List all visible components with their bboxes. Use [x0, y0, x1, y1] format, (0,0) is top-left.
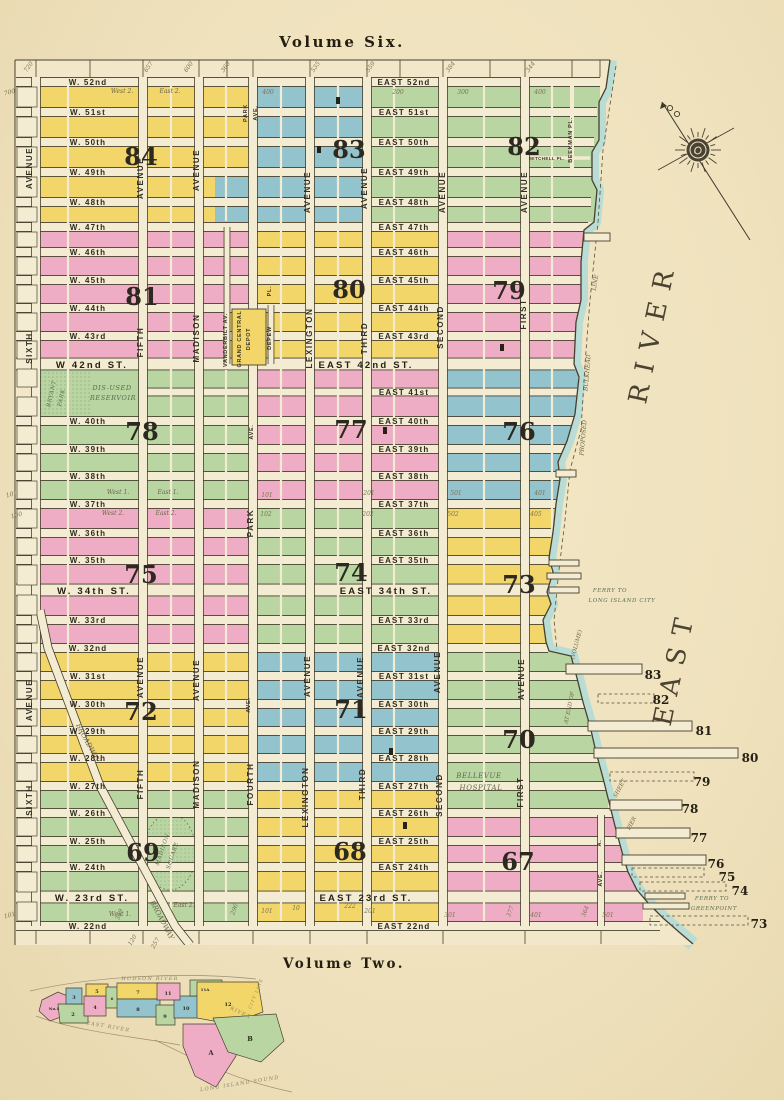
- avenue-label: SECOND: [435, 773, 444, 817]
- margin-block: [17, 257, 37, 275]
- park-annotation: FERRY TO: [694, 896, 729, 902]
- street-label: W. 34th ST.: [57, 586, 131, 597]
- street-label: W. 33rd: [70, 616, 107, 625]
- street-label: EAST 24th: [379, 863, 430, 872]
- map-annotation: West 2.: [102, 510, 124, 517]
- margin-block: [17, 736, 37, 753]
- compass-ray: [710, 154, 715, 156]
- street-label: W. 23rd ST.: [55, 893, 129, 904]
- pier-dashed: [598, 694, 654, 703]
- street-label: W. 45th: [70, 276, 106, 285]
- street-label: EAST 47th: [379, 223, 430, 232]
- pier: [594, 748, 738, 758]
- avenue-label: AVENUE: [433, 651, 442, 693]
- map-annotation: East 2.: [158, 88, 180, 95]
- street-label: EAST 22nd: [377, 922, 430, 931]
- pier-number: 77: [691, 831, 708, 845]
- avenue-label: MADISON: [192, 314, 201, 363]
- pier-number: 82: [653, 693, 670, 707]
- avenue-label: MADISON: [192, 760, 201, 809]
- margin-block: [17, 818, 37, 836]
- street-label: EAST 35th: [379, 556, 430, 565]
- lot-number: 400: [261, 89, 274, 96]
- lot-number: 405: [529, 511, 542, 518]
- atlas-key-map: Volume Six.Volume Two.RIVEREASTW. 52ndW.…: [0, 0, 784, 1100]
- lot-number: 102: [260, 511, 272, 518]
- avenue-label: THIRD: [358, 768, 367, 800]
- district-number: 81: [125, 282, 158, 311]
- street-label: W. 24th: [70, 863, 106, 872]
- inset-district-number: 7: [136, 990, 140, 996]
- district-number: 77: [334, 415, 367, 444]
- lot-number: 501: [602, 912, 613, 919]
- pier: [610, 800, 682, 810]
- street-label: EAST 27th: [379, 782, 430, 791]
- map-annotation: LINE: [591, 274, 601, 293]
- district-number: 76: [502, 417, 535, 446]
- street-label: W. 43rd: [70, 332, 107, 341]
- avenue-label: FIFTH: [136, 327, 145, 358]
- avenue-label: AVENUE: [192, 149, 201, 191]
- pier-dashed: [632, 868, 704, 877]
- map-annotation: (VOLUME): [569, 629, 584, 660]
- street-label: W 42nd ST.: [56, 360, 128, 371]
- street-label: W. 36th: [70, 529, 106, 538]
- compass-ray: [687, 161, 690, 165]
- pier: [622, 855, 706, 865]
- street-label: W. 30th: [70, 700, 106, 709]
- margin-block: [17, 763, 37, 781]
- margin-block: [17, 565, 37, 585]
- park-annotation: HOSPITAL: [459, 784, 503, 792]
- compass-ray: [691, 162, 694, 172]
- inset-district-number: 4: [93, 1005, 97, 1011]
- avenue-label: AVENUE: [136, 656, 145, 698]
- district-number: 75: [124, 560, 157, 589]
- river-name: EAST: [648, 604, 702, 729]
- map-annotation: PROPOSED: [578, 420, 588, 457]
- street-label: EAST 32nd: [377, 644, 430, 653]
- map-annotation: East 2.: [172, 902, 194, 909]
- margin-block: [17, 595, 37, 615]
- lot-number: 201: [363, 908, 375, 915]
- street-label: W. 35th: [70, 556, 106, 565]
- map-annotation: BULKHEAD: [582, 354, 592, 392]
- inset-district-number: 10: [183, 1006, 190, 1012]
- street-label: EAST 49th: [379, 168, 430, 177]
- street-label: W. 39th: [70, 445, 106, 454]
- park-annotation: RESERVOIR: [89, 394, 136, 402]
- district-number: 78: [125, 417, 158, 446]
- avenue-label: AVENUE: [303, 655, 312, 697]
- street-label: EAST 42nd ST.: [318, 360, 413, 371]
- avenue-label: SIXTH: [25, 332, 34, 364]
- street-label: EAST 34th ST.: [340, 586, 432, 597]
- map-annotation: West 1.: [107, 489, 129, 496]
- margin-block: [17, 87, 37, 107]
- street-label: W. 48th: [70, 198, 106, 207]
- pier: [566, 664, 642, 674]
- pier: [584, 233, 610, 241]
- margin-block: [17, 538, 37, 555]
- avenue-label: VANDERBILT AV.: [223, 313, 229, 367]
- compass-ray: [679, 158, 687, 164]
- compass-rose: [658, 102, 750, 240]
- district-number: 70: [502, 725, 535, 754]
- lot-number: 501: [450, 490, 461, 497]
- inset-district-number: No.1: [49, 1006, 60, 1011]
- compass-ray: [702, 128, 705, 138]
- district-number: 68: [333, 837, 366, 866]
- compass-ornament: [667, 105, 672, 110]
- district-number: 83: [332, 135, 365, 164]
- avenue-label: SIXTH: [25, 784, 34, 816]
- district-number: 74: [334, 558, 367, 587]
- street-label: EAST 37th: [379, 500, 430, 509]
- avenue-label: AVE.: [598, 871, 604, 886]
- pier: [556, 470, 576, 477]
- inset-district-number: 5: [95, 989, 99, 995]
- map-annotation: West 2.: [111, 88, 133, 95]
- park-annotation: GREENPOINT: [691, 906, 737, 912]
- district-number: 84: [124, 142, 157, 171]
- avenue-label: BEEKMAN PL.: [568, 117, 574, 163]
- lot-number: 101: [3, 911, 16, 921]
- lot-number: 700: [3, 88, 16, 98]
- street-label: EAST 51st: [379, 108, 429, 117]
- avenue-label: AVENUE: [517, 658, 526, 700]
- building-mark: [500, 344, 504, 351]
- pier-number: 73: [751, 917, 768, 931]
- avenue-label: AVENUE: [356, 656, 365, 698]
- avenue-label: THIRD: [360, 322, 369, 354]
- street-label: W. 26th: [70, 809, 106, 818]
- district-number: 67: [501, 847, 534, 876]
- lot-number: 301: [444, 912, 455, 919]
- street-label: W. 25th: [70, 837, 106, 846]
- avenue-label: LEXINGTON: [301, 767, 310, 828]
- street-label: EAST 44th: [379, 304, 430, 313]
- lot-number: 101: [261, 908, 272, 915]
- street-label: EAST 39th: [379, 445, 430, 454]
- street-label: W. 31st: [70, 672, 106, 681]
- district-number: 80: [332, 275, 365, 304]
- lot-number: 300: [457, 89, 469, 96]
- compass-ray: [687, 135, 690, 139]
- street-label: EAST 25th: [379, 837, 430, 846]
- street-label: EAST 33rd: [378, 616, 429, 625]
- street-label: EAST 29th: [379, 727, 430, 736]
- street-label: W. 52nd: [69, 78, 108, 87]
- inset-district-number: 8: [136, 1007, 140, 1013]
- river-name: RIVER: [623, 256, 683, 406]
- street-label: EAST 45th: [379, 276, 430, 285]
- map-annotation: East 1.: [156, 489, 178, 496]
- street-label: W. 49th: [70, 168, 106, 177]
- margin-block: [17, 397, 37, 416]
- lot-number: 400: [533, 89, 546, 96]
- margin-block: [17, 232, 37, 247]
- avenue-label: AVENUE: [360, 167, 369, 209]
- district-number: 71: [334, 695, 367, 724]
- margin-block: [17, 285, 37, 303]
- avenue-label: PL.: [267, 286, 273, 297]
- inset-district-number: B: [247, 1035, 253, 1043]
- volume-title: Volume Six.: [278, 33, 405, 51]
- district-number: 69: [126, 838, 159, 867]
- building-mark: [403, 822, 407, 829]
- avenue-label: SECOND: [436, 305, 445, 349]
- avenue-label: AVENUE: [520, 171, 529, 213]
- avenue-label: AVENUE: [303, 171, 312, 213]
- avenue-label: PARK: [243, 104, 249, 122]
- street-label: W. 47th: [70, 223, 106, 232]
- margin-block: [17, 117, 37, 137]
- inset-district-number: A: [207, 1049, 214, 1057]
- street-label: EAST 23rd ST.: [319, 893, 412, 904]
- margin-block: [17, 872, 37, 892]
- compass-ray: [706, 135, 709, 139]
- pier-number: 81: [696, 724, 713, 738]
- pier-number: 74: [732, 884, 749, 898]
- lot-number: 201: [362, 490, 374, 497]
- street-label: EAST 46th: [379, 248, 430, 257]
- district-number: 79: [492, 276, 525, 305]
- street-label: W. 37th: [70, 500, 106, 509]
- margin-block: [17, 426, 37, 444]
- pier-number: 78: [682, 802, 699, 816]
- inset-district-number: 11: [165, 991, 172, 997]
- avenue-label: FOURTH: [246, 763, 255, 806]
- street-label: EAST 26th: [379, 809, 430, 818]
- margin-block: [17, 481, 37, 499]
- street-label: W. 40th: [70, 417, 106, 426]
- avenue-label: PARK: [246, 509, 255, 537]
- street-label: W. 44th: [70, 304, 106, 313]
- margin-block: [17, 454, 37, 471]
- street-label: EAST 30th: [379, 700, 430, 709]
- margin-block: [17, 207, 37, 222]
- street-label: W. 32nd: [69, 644, 108, 653]
- pier: [547, 573, 581, 579]
- margin-block: [17, 313, 37, 331]
- inset-district-number: 9: [163, 1014, 167, 1020]
- building-mark: [336, 97, 340, 104]
- pier: [549, 560, 579, 566]
- compass-ray: [706, 161, 709, 165]
- avenue-label: AVENUE: [25, 147, 34, 189]
- lot-number: 200: [391, 89, 404, 96]
- street-label: EAST 38th: [379, 472, 430, 481]
- compass-needle: [662, 102, 750, 240]
- avenue-label: AVE.: [253, 105, 259, 120]
- avenue-label: FIRST: [516, 776, 525, 807]
- margin-block: [17, 846, 37, 862]
- street-label: EAST 31st: [379, 672, 429, 681]
- pier-number: 83: [645, 668, 662, 682]
- street-label: EAST 36th: [379, 529, 430, 538]
- avenue-label: LEXINGTON: [305, 308, 314, 369]
- lot-number: 101: [261, 492, 272, 499]
- pier-number: 75: [719, 870, 736, 884]
- lot-number: 222: [343, 903, 356, 910]
- lot-number: 401: [529, 912, 541, 919]
- park-annotation: FERRY TO: [592, 588, 627, 594]
- margin-block: [17, 902, 37, 921]
- street-label: EAST 43rd: [378, 332, 429, 341]
- street-label: EAST 50th: [379, 138, 430, 147]
- compass-ray: [681, 144, 686, 146]
- street-label: W. 27th: [70, 782, 106, 791]
- avenue-label: DEPEW: [267, 326, 273, 350]
- avenue-label: AVE.: [246, 697, 252, 712]
- avenue-label: DEPOT: [246, 328, 252, 350]
- street-label: EAST 40th: [379, 417, 430, 426]
- street-label: W. 50th: [70, 138, 106, 147]
- street-label: EAST 41st: [379, 388, 429, 397]
- inset-district-number: 2: [71, 1012, 75, 1018]
- pier: [643, 903, 689, 909]
- inset-district-number: 3: [72, 995, 76, 1001]
- pier: [645, 893, 685, 899]
- park-annotation: BELLEVUE: [455, 772, 502, 780]
- compass-ray: [691, 128, 694, 138]
- street-label: W. 46th: [70, 248, 106, 257]
- district-number: 73: [502, 570, 535, 599]
- map-annotation: East 2.: [154, 510, 176, 517]
- building-mark: [317, 146, 321, 153]
- street-label: EAST 28th: [379, 754, 430, 763]
- margin-block: [17, 625, 37, 643]
- margin-block: [17, 653, 37, 671]
- avenue-label: A.: [597, 840, 603, 847]
- margin-block: [17, 369, 37, 387]
- district-number: 82: [507, 132, 540, 161]
- avenue-label: FIFTH: [136, 769, 145, 800]
- lot-number: 401: [533, 490, 545, 497]
- inset-district-number: 11A: [201, 987, 211, 992]
- street-label: W. 22nd: [69, 922, 108, 931]
- compass-ornament: [674, 111, 679, 116]
- pier: [549, 587, 579, 593]
- avenue-label: AVENUE: [25, 679, 34, 721]
- avenue-label: AVENUE: [192, 659, 201, 701]
- inset-water-label: HUDSON RIVER: [120, 976, 178, 982]
- street-label: EAST 52nd: [377, 78, 430, 87]
- inset-water-label: EAST RIVER: [85, 1020, 131, 1034]
- compass-ray: [710, 144, 715, 146]
- building-mark: [383, 427, 387, 434]
- avenue-label: AVENUE: [438, 171, 447, 213]
- lot-number: 202: [361, 511, 374, 518]
- park-annotation: DIS-USED: [91, 384, 132, 392]
- compass-ray: [709, 158, 717, 164]
- street-label: W. 51st: [70, 108, 106, 117]
- pier-number: 76: [708, 857, 725, 871]
- park-annotation: LONG ISLAND CITY: [588, 598, 657, 604]
- lot-number: 10: [292, 905, 300, 912]
- pier-number: 80: [742, 751, 759, 765]
- street-label: EAST 48th: [379, 198, 430, 207]
- street-label: W. 38th: [70, 472, 106, 481]
- inset-district-number: 6: [111, 996, 114, 1001]
- lot-number: 502: [447, 511, 459, 518]
- volume-title: Volume Two.: [282, 956, 405, 972]
- avenue-label: AVE.: [249, 424, 255, 439]
- atlas-page: Volume Six.Volume Two.RIVEREASTW. 52ndW.…: [0, 0, 784, 1100]
- pier-dashed: [640, 882, 726, 891]
- avenue-label: GRAND CENTRAL: [237, 310, 243, 367]
- pier-number: 79: [694, 775, 711, 789]
- district-number: 72: [124, 697, 157, 726]
